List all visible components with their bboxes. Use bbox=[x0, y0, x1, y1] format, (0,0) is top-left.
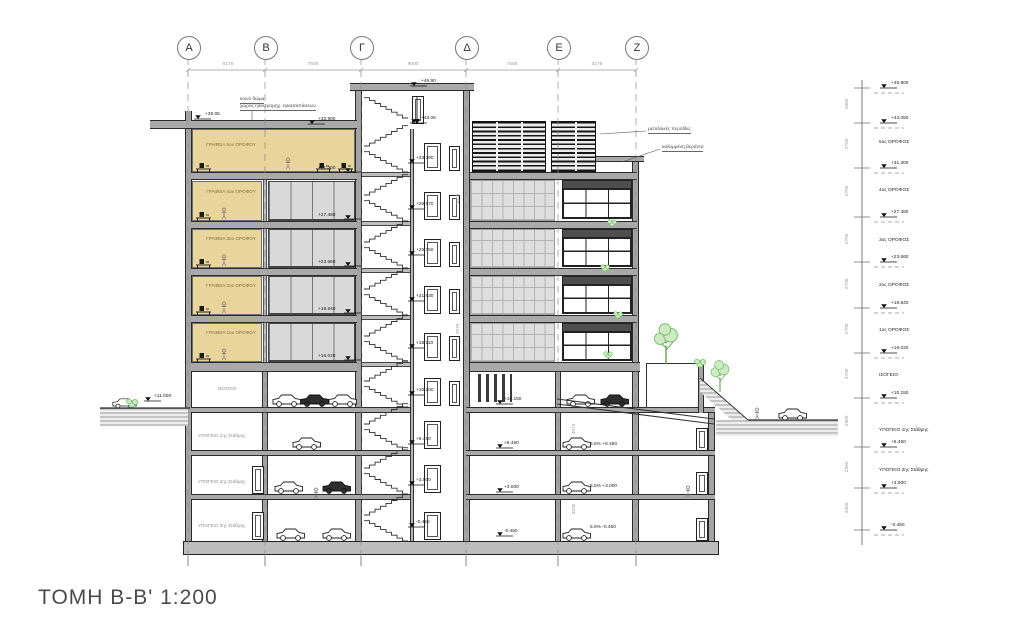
elev-street-left: +11.000 bbox=[154, 394, 171, 400]
elev-floor-left: +27.480 bbox=[318, 213, 335, 219]
office-label: ΓΡΑΦΕΙΑ 4ου ΟΡΟΦΟΥ bbox=[200, 189, 262, 195]
rcol-elev: +23.660 bbox=[891, 255, 908, 261]
desk-icon bbox=[338, 163, 353, 173]
rcol-elev: +6.450 bbox=[891, 440, 906, 446]
rcol-dim: 3450 bbox=[845, 490, 851, 526]
rcol-elev: +27.480 bbox=[891, 210, 908, 216]
roof-note-line2: χώρος ηλεκτρομηχ. εγκαταστάσεων bbox=[240, 104, 316, 111]
grid-label: Ζ bbox=[634, 42, 641, 54]
elev-ground-tower: +10.200 bbox=[416, 388, 433, 394]
elev-floor-left: +19.840 bbox=[318, 307, 335, 313]
elev-machine: +43.05 bbox=[421, 116, 436, 122]
person-icon bbox=[222, 255, 226, 266]
inner-dim: 3075 bbox=[456, 314, 462, 344]
elev-floor-left: +31.300 bbox=[318, 166, 335, 172]
rcol-elev: +3.000 bbox=[891, 481, 906, 487]
grid-bubble-g: Γ bbox=[350, 36, 374, 60]
car-icon bbox=[273, 395, 301, 406]
bush-icon bbox=[695, 359, 706, 367]
tree-icon bbox=[655, 324, 678, 364]
desk-icon bbox=[196, 259, 211, 269]
section-drawing: Α Β Γ Δ Ε Ζ 6175 7500 9000 7500 6175 ΓΡΑ… bbox=[0, 0, 1024, 621]
person-icon bbox=[222, 349, 226, 360]
plant-icon bbox=[614, 312, 623, 318]
ramp-slope-label: 5.5% +6.450 bbox=[590, 442, 617, 448]
bottom-ticks bbox=[188, 556, 636, 566]
office-label: ΓΡΑΦΕΙΑ 5ου ΟΡΟΦΟΥ bbox=[200, 142, 262, 148]
person-icon bbox=[222, 208, 226, 219]
person-icon bbox=[314, 488, 318, 499]
rcol-dim: 2700 bbox=[845, 221, 851, 257]
grid-label: Γ bbox=[359, 42, 365, 54]
grid-bubble-a: Α bbox=[177, 36, 201, 60]
rcol-dim: 2700 bbox=[845, 173, 851, 209]
drawing-title: ΤΟΜΗ Β-Β' 1:200 bbox=[38, 586, 218, 610]
elev-ground-center: +10.150 bbox=[504, 397, 521, 403]
rcol-dim: 2700 bbox=[845, 266, 851, 302]
car-icon bbox=[779, 409, 807, 420]
elev-b2-center: +3.000 bbox=[504, 485, 519, 491]
inner-dim: 3025 bbox=[456, 184, 462, 214]
basement-label: ΥΠΟΓΕΙΟ 1ης Στάθμης bbox=[198, 433, 245, 439]
rcol-floor-label: 1ος ΟΡΟΦΟΣ bbox=[879, 328, 909, 334]
car-icon bbox=[277, 529, 305, 540]
louvers-note: μεταλλικές περσίδες bbox=[648, 127, 691, 134]
car-icon bbox=[563, 529, 591, 540]
rcol-dim: 2950 bbox=[845, 449, 851, 485]
rcol-elev: +43.050 bbox=[891, 116, 908, 122]
elev-roof-left: +35.05 bbox=[205, 112, 220, 118]
span-dim: 7500 bbox=[487, 62, 537, 68]
furniture-people bbox=[196, 158, 759, 499]
roof-note-line1: κοινό δώμα bbox=[240, 97, 264, 104]
grid-label: Ε bbox=[555, 42, 562, 54]
plant-icon bbox=[604, 352, 613, 358]
person-icon bbox=[755, 408, 759, 419]
elev-tower-top: +46.90 bbox=[421, 79, 436, 85]
note-leaders bbox=[252, 111, 660, 162]
plant-icon bbox=[608, 220, 617, 226]
rcol-elev: +45.800 bbox=[891, 81, 908, 87]
desk-icon bbox=[196, 306, 211, 316]
veranda-note: καλυμμένη βεράντα bbox=[662, 145, 703, 152]
span-dim: 6175 bbox=[203, 62, 253, 68]
rcol-floor-label: 3ος ΟΡΟΦΟΣ bbox=[879, 238, 909, 244]
grid-bubble-e: Ε bbox=[547, 36, 571, 60]
rcol-dim: 3700 bbox=[845, 356, 851, 392]
stair-flights bbox=[364, 98, 408, 541]
elev-b1-tower: +6.450 bbox=[416, 437, 431, 443]
rcol-floor-label: ΙΣΟΓΕΙΟ bbox=[879, 373, 898, 379]
rcol-elev: +16.020 bbox=[891, 346, 908, 352]
rcol-dim: 2650 bbox=[845, 86, 851, 122]
span-dim: 6175 bbox=[572, 62, 622, 68]
desk-icon bbox=[196, 212, 211, 222]
elev-b1-center: +6.450 bbox=[504, 441, 519, 447]
office-label: ΓΡΑΦΕΙΑ 2ου ΟΡΟΦΟΥ bbox=[200, 283, 262, 289]
car-icon bbox=[293, 438, 321, 449]
elev-landing: +21.930 bbox=[416, 294, 433, 300]
rcol-elev: +19.840 bbox=[891, 301, 908, 307]
elev-b3-tower: -0.450 bbox=[416, 520, 430, 526]
grid-bubble-d: Δ bbox=[455, 36, 479, 60]
desk-icon bbox=[196, 353, 211, 363]
rcol-dim: 2700 bbox=[845, 311, 851, 347]
inner-dim: 3075 bbox=[572, 414, 578, 444]
elev-floor-left: +16.020 bbox=[318, 354, 335, 360]
office-label: ΓΡΑΦΕΙΑ 3ου ΟΡΟΦΟΥ bbox=[200, 236, 262, 242]
car-icon bbox=[323, 482, 351, 493]
rcol-elev: +31.300 bbox=[891, 161, 908, 167]
cars bbox=[113, 395, 807, 540]
desk-icon bbox=[196, 163, 211, 173]
rcol-floor-label: 5ος ΟΡΟΦΟΣ bbox=[879, 140, 909, 146]
linework-overlay bbox=[0, 0, 1024, 621]
elev-landing: +29.570 bbox=[416, 202, 433, 208]
rcol-elev: -0.450 bbox=[891, 523, 905, 529]
elev-landing: +33.390 bbox=[416, 156, 433, 162]
grid-label: Α bbox=[185, 42, 192, 54]
rcol-dim: 2700 bbox=[845, 126, 851, 162]
grid-label: Β bbox=[262, 42, 269, 54]
rcol-elev: +10.150 bbox=[891, 391, 908, 397]
car-icon bbox=[329, 395, 357, 406]
car-icon bbox=[563, 482, 591, 493]
span-dim: 7500 bbox=[288, 62, 338, 68]
grid-bubble-z: Ζ bbox=[625, 36, 649, 60]
car-icon bbox=[275, 482, 303, 493]
car-icon bbox=[301, 395, 329, 406]
person-icon bbox=[286, 158, 290, 169]
ground-label: ΙΣΟΓΕΙΟ bbox=[200, 386, 254, 392]
grid-label: Δ bbox=[463, 42, 470, 54]
rcol-floor-label: ΥΠΟΓΕΙΟ 2ης Στάθμης bbox=[879, 468, 928, 474]
car-icon bbox=[323, 529, 351, 540]
ramp-slope-label: 5.5% -0.450 bbox=[590, 525, 616, 531]
inner-dim: 3035 bbox=[572, 494, 578, 524]
person-icon bbox=[686, 486, 690, 497]
rcol-dim: 2950 bbox=[845, 403, 851, 439]
elev-roof-right: +32.900 bbox=[318, 117, 335, 123]
office-label: ΓΡΑΦΕΙΑ 1ου ΟΡΟΦΟΥ bbox=[200, 330, 262, 336]
rcol-floor-label: ΥΠΟΓΕΙΟ 1ης Στάθμης bbox=[879, 428, 928, 434]
grid-bubble-b: Β bbox=[254, 36, 278, 60]
top-dimension-line bbox=[186, 68, 638, 72]
elev-b2-tower: +3.000 bbox=[416, 478, 431, 484]
rcol-floor-label: 2ος ΟΡΟΦΟΣ bbox=[879, 283, 909, 289]
plant-icon bbox=[601, 265, 610, 271]
basement-label: ΥΠΟΓΕΙΟ 3ης Στάθμης bbox=[198, 523, 245, 529]
basement-label: ΥΠΟΓΕΙΟ 2ης Στάθμης bbox=[198, 479, 245, 485]
rcol-floor-label: 4ος ΟΡΟΦΟΣ bbox=[879, 188, 909, 194]
tree-icon bbox=[711, 361, 729, 393]
elev-landing: +25.750 bbox=[416, 248, 433, 254]
right-level-column bbox=[854, 80, 904, 545]
elev-floor-left: +23.660 bbox=[318, 260, 335, 266]
elev-b3-center: -0.450 bbox=[504, 529, 518, 535]
span-dim: 9000 bbox=[388, 62, 438, 68]
ramp-slope-label: 5.5% +3.000 bbox=[590, 484, 617, 490]
person-icon bbox=[222, 302, 226, 313]
elev-landing: +18.110 bbox=[416, 341, 433, 347]
